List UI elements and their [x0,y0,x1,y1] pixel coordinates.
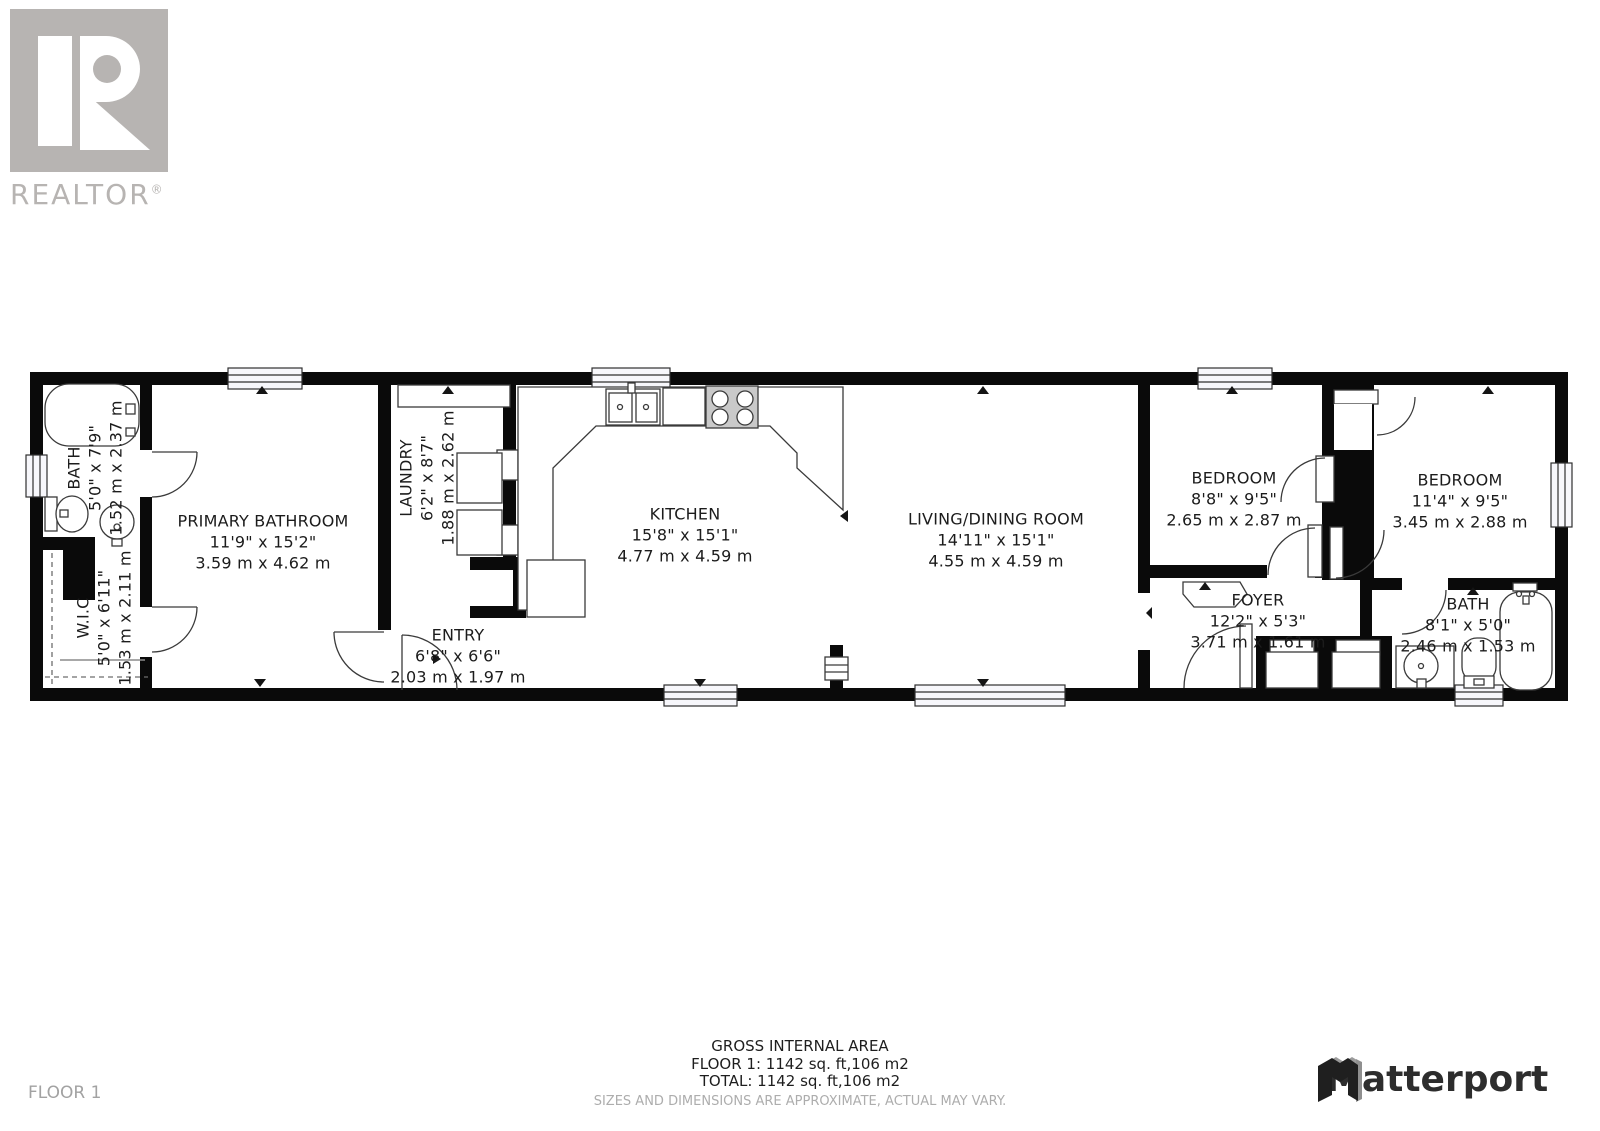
window-bottom-living [915,685,1065,706]
room-name: LIVING/DINING ROOM [908,509,1084,530]
matterport-logo: Matterport [1314,1053,1548,1105]
room-size-imperial: 11'4" x 9'5" [1392,491,1527,512]
floor-plan-page: REALTOR® [0,0,1600,1131]
room-name: PRIMARY BATHROOM [178,511,349,532]
room-size-metric: 1.52 m x 2.37 m [106,400,127,535]
room-name: KITCHEN [617,504,752,525]
room-size-imperial: 5'0" x 6'11" [94,550,115,685]
room-name: BEDROOM [1392,470,1527,491]
stove-icon [706,386,758,428]
kitchen-sink-icon [606,383,660,425]
room-size-metric: 2.46 m x 1.53 m [1400,636,1535,657]
room-size-metric: 1.53 m x 2.11 m [115,550,136,685]
room-size-metric: 4.77 m x 4.59 m [617,546,752,567]
room-size-metric: 1.88 m x 2.62 m [438,410,459,545]
room-size-metric: 3.45 m x 2.88 m [1392,512,1527,533]
room-size-imperial: 6'2" x 8'7" [417,410,438,545]
room-label-bath2: BATH 8'1" x 5'0" 2.46 m x 1.53 m [1400,594,1535,657]
room-label-living-dining: LIVING/DINING ROOM 14'11" x 15'1" 4.55 m… [908,509,1084,572]
room-size-metric: 2.03 m x 1.97 m [390,667,525,688]
room-name: W.I.C [73,550,94,685]
window-left-bath1 [26,455,47,497]
room-label-entry: ENTRY 6'8" x 6'6" 2.03 m x 1.97 m [390,625,525,688]
room-label-primary-bathroom: PRIMARY BATHROOM 11'9" x 15'2" 3.59 m x … [178,511,349,574]
room-size-imperial: 8'1" x 5'0" [1400,615,1535,636]
room-name: BEDROOM [1166,468,1301,489]
room-size-imperial: 8'8" x 9'5" [1166,489,1301,510]
window-top-primary [228,368,302,389]
room-size-imperial: 11'9" x 15'2" [178,532,349,553]
matterport-logo-icon [1314,1053,1364,1105]
room-name: BATH [1400,594,1535,615]
room-name: FOYER [1190,590,1325,611]
room-size-imperial: 15'8" x 15'1" [617,525,752,546]
room-name: LAUNDRY [396,410,417,545]
room-label-bath1: BATH 5'0" x 7'9" 1.52 m x 2.37 m [64,400,127,535]
room-label-bedroom1: BEDROOM 8'8" x 9'5" 2.65 m x 2.87 m [1166,468,1301,531]
room-label-bedroom2: BEDROOM 11'4" x 9'5" 3.45 m x 2.88 m [1392,470,1527,533]
window-bottom-entry [664,685,737,706]
room-size-imperial: 6'8" x 6'6" [390,646,525,667]
room-label-laundry: LAUNDRY 6'2" x 8'7" 1.88 m x 2.62 m [396,410,459,545]
window-top-bedroom1 [1198,368,1272,389]
room-size-metric: 3.59 m x 4.62 m [178,553,349,574]
room-size-imperial: 5'0" x 7'9" [85,400,106,535]
room-label-foyer: FOYER 12'2" x 5'3" 3.71 m x 1.61 m [1190,590,1325,653]
room-size-metric: 2.65 m x 2.87 m [1166,510,1301,531]
room-size-metric: 4.55 m x 4.59 m [908,551,1084,572]
room-label-wic: W.I.C 5'0" x 6'11" 1.53 m x 2.11 m [73,550,136,685]
room-label-kitchen: KITCHEN 15'8" x 15'1" 4.77 m x 4.59 m [617,504,752,567]
window-right-bedroom2 [1551,463,1572,527]
room-size-metric: 3.71 m x 1.61 m [1190,632,1325,653]
room-name: BATH [64,400,85,535]
wall-vent [825,657,848,680]
laundry-counter [398,385,510,407]
washer-icon [457,453,502,503]
dryer-icon [457,510,502,555]
room-name: ENTRY [390,625,525,646]
room-size-imperial: 14'11" x 15'1" [908,530,1084,551]
kitchen-cabinet [663,388,705,425]
room-size-imperial: 12'2" x 5'3" [1190,611,1325,632]
